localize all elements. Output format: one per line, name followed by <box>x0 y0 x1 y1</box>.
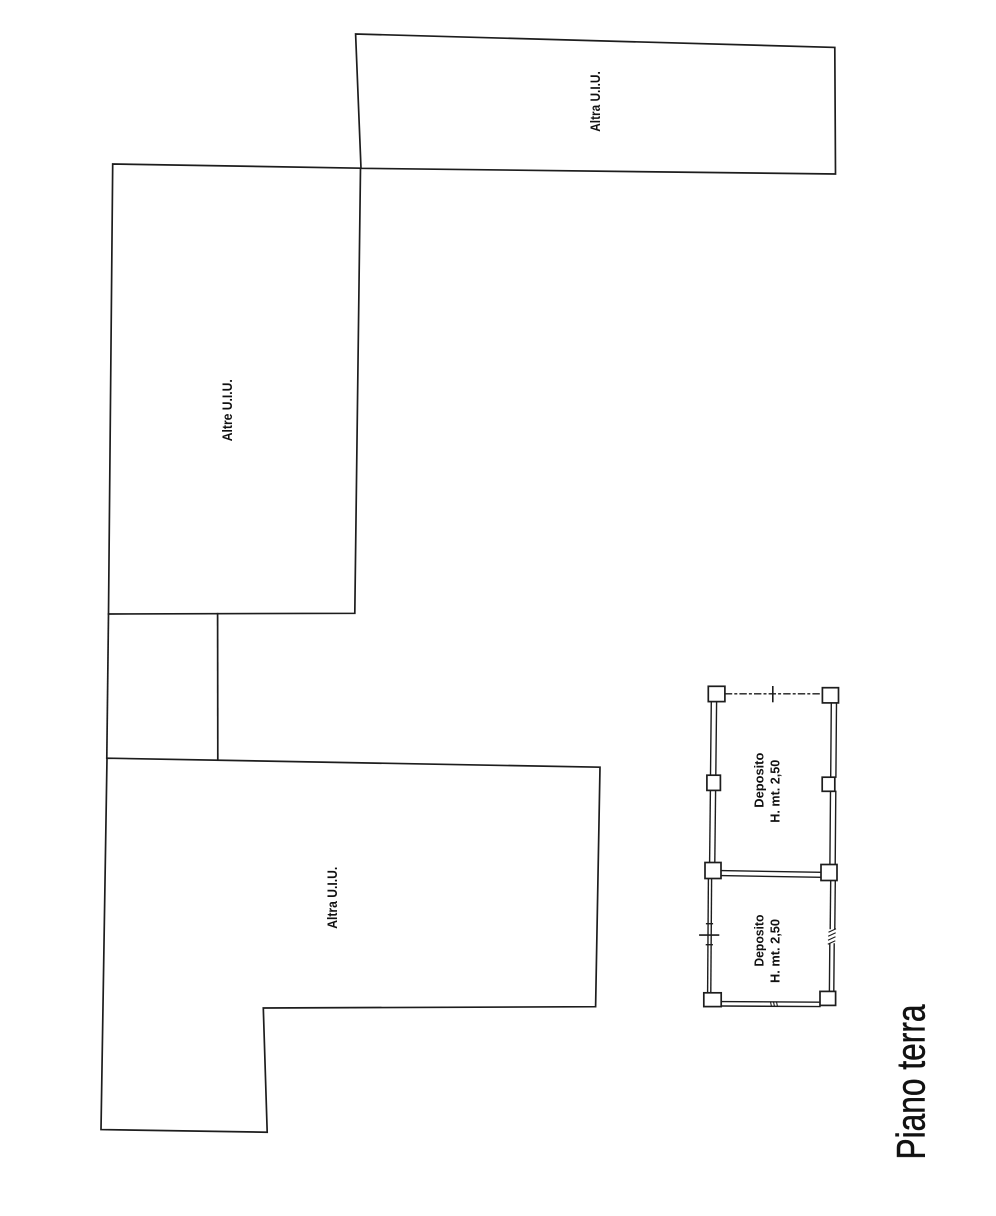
svg-text:H. mt. 2,50: H. mt. 2,50 <box>768 760 783 823</box>
svg-text:Piano terra: Piano terra <box>890 1004 934 1159</box>
svg-text:Altra U.I.U.: Altra U.I.U. <box>588 71 603 132</box>
svg-text:H. mt. 2,50: H. mt. 2,50 <box>767 919 782 983</box>
svg-text:Altre U.I.U.: Altre U.I.U. <box>220 379 235 441</box>
svg-text:Altra U.I.U.: Altra U.I.U. <box>325 867 340 929</box>
svg-text:Deposito: Deposito <box>751 753 766 808</box>
svg-text:Deposito: Deposito <box>752 914 767 966</box>
